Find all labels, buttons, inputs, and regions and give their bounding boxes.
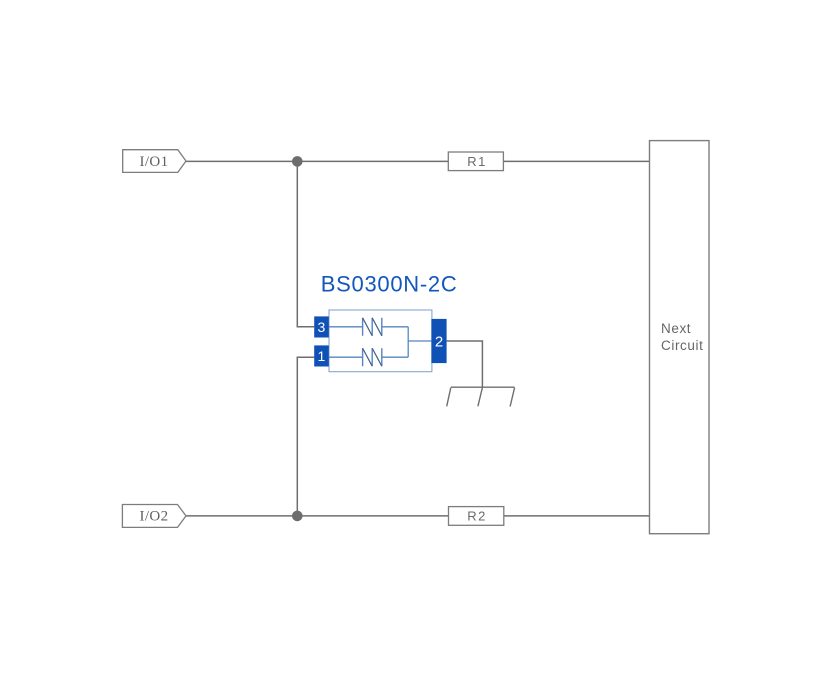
svg-text:1: 1 [318, 348, 326, 364]
svg-text:I/O2: I/O2 [139, 509, 168, 525]
svg-text:2: 2 [435, 333, 443, 350]
svg-text:R2: R2 [467, 509, 486, 524]
svg-text:I/O1: I/O1 [139, 154, 168, 170]
svg-text:Next: Next [661, 321, 691, 336]
svg-text:BS0300N-2C: BS0300N-2C [321, 272, 458, 297]
svg-text:3: 3 [318, 319, 326, 335]
svg-text:Circuit: Circuit [661, 338, 703, 353]
svg-text:R1: R1 [467, 154, 486, 169]
